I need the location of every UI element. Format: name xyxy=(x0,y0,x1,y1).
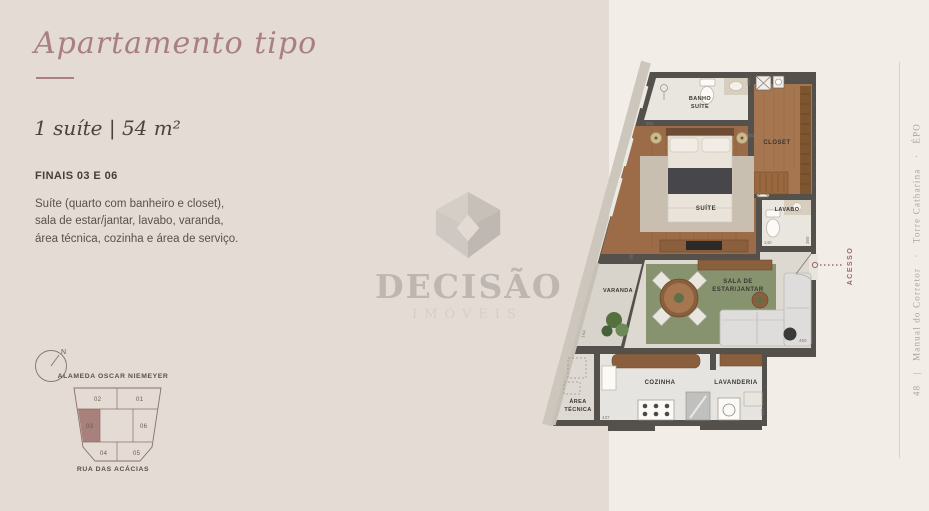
svg-text:303: 303 xyxy=(747,133,755,138)
label-area-tecnica: ÁREA xyxy=(569,398,586,405)
svg-text:437: 437 xyxy=(602,415,610,420)
label-sala: SALA DE xyxy=(723,279,753,285)
description-line: área técnica, cozinha e área de serviço. xyxy=(35,231,238,248)
unit-label-04: 04 xyxy=(100,451,108,457)
label-cozinha: COZINHA xyxy=(645,380,676,386)
svg-text:SUÍTE: SUÍTE xyxy=(691,102,709,110)
svg-text:360: 360 xyxy=(805,236,810,244)
unit-label-06: 06 xyxy=(140,424,148,430)
access-marker: ACESSO xyxy=(812,247,854,286)
tv xyxy=(686,241,722,250)
plan-code: FINAIS 03 E 06 xyxy=(35,170,118,182)
street-label-top: ALAMEDA OSCAR NIEMEYER xyxy=(57,373,169,380)
svg-text:150: 150 xyxy=(760,408,765,416)
street-label-bottom: RUA DAS ACÁCIAS xyxy=(57,466,169,473)
title-divider xyxy=(36,77,74,79)
svg-text:TÉCNICA: TÉCNICA xyxy=(564,405,591,413)
closet-wardrobe xyxy=(800,86,811,194)
stove xyxy=(638,400,674,420)
label-suite: SUÍTE xyxy=(696,204,716,212)
description-line: sala de estar/jantar, lavabo, varanda, xyxy=(35,213,238,230)
kitchen-sink xyxy=(602,366,616,390)
svg-text:130: 130 xyxy=(746,78,751,86)
label-acesso: ACESSO xyxy=(847,247,854,286)
building-footprint-diagram: 02 01 03 06 04 05 xyxy=(70,385,165,465)
svg-text:ESTAR/JANTAR: ESTAR/JANTAR xyxy=(712,287,764,293)
sideboard xyxy=(698,260,772,270)
sidebar-rule xyxy=(899,62,900,458)
unit-label-05: 05 xyxy=(133,451,141,457)
label-lavabo: LAVABO xyxy=(775,207,800,213)
label-lavanderia: LAVANDERIA xyxy=(714,380,758,386)
compass-icon: N xyxy=(28,342,76,390)
laundry-tank xyxy=(744,392,762,406)
unit-label-01: 01 xyxy=(136,397,144,403)
label-varanda: VARANDA xyxy=(603,288,633,294)
floorplan-svg: BANHO SUÍTE CLOSET SUÍTE LAVABO SALA DE … xyxy=(528,48,868,468)
kitchen-counter xyxy=(612,354,700,368)
washing-machine xyxy=(718,398,740,420)
svg-text:450: 450 xyxy=(799,338,807,343)
wall-stub xyxy=(710,354,716,370)
unit-label-03: 03 xyxy=(86,424,94,430)
toilet-banho xyxy=(700,79,715,86)
page-root: Apartamento tipo 1 suíte | 54 m² FINAIS … xyxy=(0,0,929,511)
compass-north-label: N xyxy=(61,349,66,356)
label-banho-suite: BANHO xyxy=(689,96,711,102)
label-closet: CLOSET xyxy=(763,140,790,146)
svg-text:140: 140 xyxy=(764,240,772,245)
unit-label-02: 02 xyxy=(94,397,102,403)
description-line: Suíte (quarto com banheiro e closet), xyxy=(35,196,238,213)
svg-text:282: 282 xyxy=(646,121,654,126)
apartment-spec: 1 suíte | 54 m² xyxy=(34,116,181,140)
fridge xyxy=(686,392,710,420)
apartment-description: Suíte (quarto com banheiro e closet), sa… xyxy=(35,196,238,248)
page-title: Apartamento tipo xyxy=(34,26,317,61)
closet-drawers xyxy=(754,172,788,194)
sidebar-caption: 48 | Manual do Corretor · Torre Catharin… xyxy=(912,55,925,465)
laundry-counter xyxy=(720,354,762,366)
